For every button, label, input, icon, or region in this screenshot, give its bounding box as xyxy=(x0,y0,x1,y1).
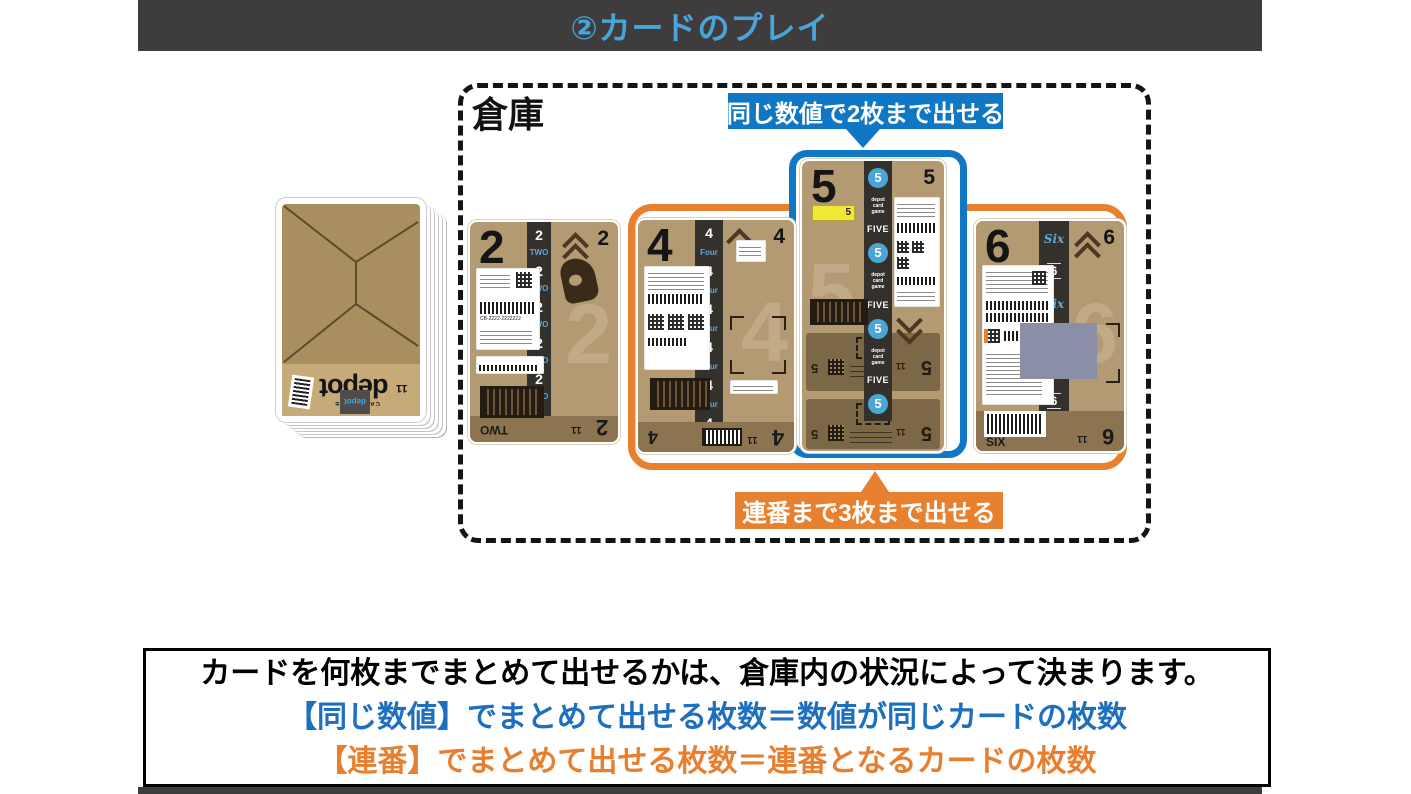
shipping-label: CB-2222-2222222 xyxy=(476,268,540,350)
card-number: 5 xyxy=(811,161,837,212)
card-4: 4 4 4 4Four4Four4Four4Four4Four4Four 4 1… xyxy=(636,218,796,454)
band-barcode-chip xyxy=(702,428,742,446)
fine-print xyxy=(850,429,892,443)
shipping-label xyxy=(644,266,710,370)
next-section-bar xyxy=(138,787,1262,794)
band-tally: 11 xyxy=(1077,433,1088,444)
warehouse-label: 倉庫 xyxy=(472,86,544,138)
band-word: 4 xyxy=(648,426,658,447)
band-word: TWO xyxy=(480,423,508,437)
qr-icon xyxy=(828,359,844,375)
section-header-bar: ②カードのプレイ xyxy=(138,0,1262,51)
deck-logo-band: depot CARD GAME depot 11 xyxy=(282,364,420,416)
band-tally: 11 xyxy=(747,434,758,445)
barcode-label xyxy=(650,378,710,410)
sequence-callout-text: 連番まで3枚まで出せる xyxy=(742,493,995,528)
card-5-stack: 5 5 5 5 5depot card gameFIVE5depot card … xyxy=(800,159,946,453)
tape-item: 5 xyxy=(868,168,888,188)
card-corner-number: 5 xyxy=(923,166,935,190)
same-value-callout: 同じ数値で2枚まで出せる xyxy=(728,93,1003,129)
qr-icon xyxy=(828,425,844,441)
up-arrows-icon xyxy=(566,236,585,258)
same-value-callout-text: 同じ数値で2枚まで出せる xyxy=(727,94,1004,129)
label-code: CB-2222-2222222 xyxy=(480,316,521,322)
gray-overlay-patch xyxy=(1020,323,1097,379)
band-number: 6 xyxy=(1102,423,1114,449)
summary-line-2: 【同じ数値】でまとめて出せる枚数＝数値が同じカードの枚数 xyxy=(146,696,1268,740)
tape-item: FIVE xyxy=(867,375,889,385)
watermark-number: 2 xyxy=(565,292,612,376)
tape-item: Six xyxy=(1044,232,1064,246)
band-number: 2 xyxy=(596,414,608,440)
rules-slide: ②カードのプレイ 倉庫 depot CARD GAME depot 11 xyxy=(0,0,1411,794)
tape-item: 5 xyxy=(868,319,888,339)
summary-line-1: カードを何枚までまとめて出せるかは、倉庫内の状況によって決まります。 xyxy=(146,652,1268,696)
shipping-label xyxy=(894,197,940,307)
small-label xyxy=(736,240,766,262)
card-corner-number: 2 xyxy=(597,227,609,251)
card-number: 2 xyxy=(479,222,505,273)
barcode-sticker-icon xyxy=(288,375,314,410)
up-arrows-icon xyxy=(1078,235,1097,257)
deck-tally: 11 xyxy=(396,382,408,394)
tape-hand-icon xyxy=(558,255,600,305)
yellow-price-tag: 5 xyxy=(812,205,855,221)
number-tape: 5depot card gameFIVE5depot card gameFIVE… xyxy=(864,161,892,421)
card-number: 4 xyxy=(647,220,673,271)
tape-item: FIVE xyxy=(867,224,889,234)
card-2: 2 2 2 2TWO2TWO2TWO2TWO2TWO2TWO CB-2222-2… xyxy=(468,220,620,444)
band-barcode xyxy=(984,411,1046,437)
card-6: 6 6 6 Six6Six6Six6Six SIX 11 6 xyxy=(974,219,1126,453)
card-corner-number: 6 xyxy=(1103,226,1115,250)
tape-item: 5 xyxy=(868,243,888,263)
rules-summary-box: カードを何枚までまとめて出せるかは、倉庫内の状況によって決まります。 【同じ数値… xyxy=(143,648,1271,787)
band-word: SIX xyxy=(986,435,1005,449)
summary-line-3: 【連番】でまとめて出せる枚数＝連番となるカードの枚数 xyxy=(146,740,1268,784)
sequence-callout: 連番まで3枚まで出せる xyxy=(735,492,1003,529)
card-bottom-band: TWO 11 2 xyxy=(470,416,618,442)
tape-item: depot card game xyxy=(866,197,890,215)
draw-deck: depot CARD GAME depot 11 xyxy=(276,198,426,422)
tape-item: 5 xyxy=(868,394,888,414)
address-label xyxy=(476,356,544,374)
card-corner-number: 4 xyxy=(773,225,785,249)
barcode-label xyxy=(810,299,868,325)
barcode-label xyxy=(480,386,544,418)
tape-item: FIVE xyxy=(867,300,889,310)
tape-item: TWO xyxy=(530,248,549,257)
cardboard-fold-lines-icon xyxy=(282,204,420,364)
tape-item: Four xyxy=(700,248,718,257)
band-number: 4 xyxy=(772,424,784,450)
tape-item: depot card game xyxy=(866,272,890,290)
card-bottom-band: SIX 11 6 xyxy=(976,411,1124,451)
down-arrows-icon xyxy=(900,311,919,333)
card-back: depot CARD GAME depot 11 xyxy=(276,198,426,422)
card-number: 6 xyxy=(985,221,1011,272)
card-bottom-band: 4 11 4 xyxy=(638,422,794,452)
tape-item: depot card game xyxy=(866,348,890,366)
section-title: ②カードのプレイ xyxy=(570,3,829,49)
tape-item: 4 xyxy=(705,225,713,241)
depot-chip-logo: depot xyxy=(340,390,370,414)
small-label-right xyxy=(730,380,778,394)
tape-item: 2 xyxy=(535,227,543,243)
band-tally: 11 xyxy=(571,424,582,435)
